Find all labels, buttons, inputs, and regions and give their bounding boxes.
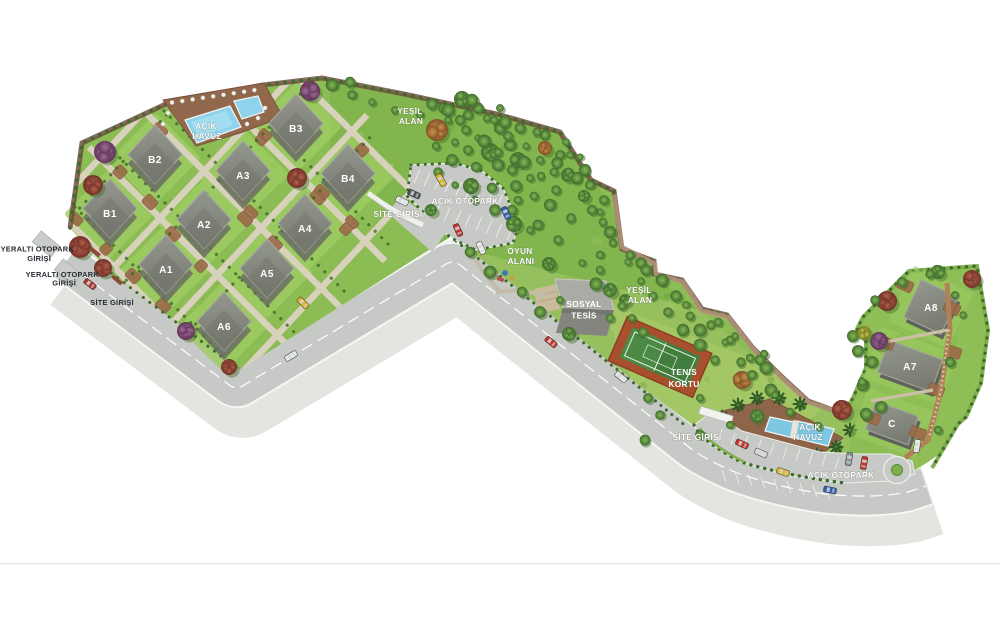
svg-text:AÇIK OTOPARK: AÇIK OTOPARK	[432, 196, 499, 206]
svg-text:AÇIK: AÇIK	[799, 422, 820, 432]
svg-text:GİRİŞİ: GİRİŞİ	[27, 254, 51, 263]
svg-text:B3: B3	[289, 124, 303, 135]
svg-text:HAVUZ: HAVUZ	[192, 131, 221, 141]
svg-text:SİTE GİRİŞİ: SİTE GİRİŞİ	[374, 209, 423, 219]
svg-text:KORTU: KORTU	[669, 379, 700, 389]
svg-text:YEŞİL: YEŞİL	[626, 285, 651, 295]
svg-text:B2: B2	[148, 155, 162, 166]
svg-text:B1: B1	[103, 209, 117, 220]
svg-text:TENIS: TENIS	[671, 367, 697, 377]
svg-text:A1: A1	[159, 265, 173, 276]
svg-text:ALANI: ALANI	[508, 256, 535, 266]
svg-text:HAVUZ: HAVUZ	[793, 432, 822, 442]
svg-text:GİRİŞİ: GİRİŞİ	[52, 279, 76, 288]
svg-text:A8: A8	[924, 303, 938, 314]
svg-text:ALAN: ALAN	[399, 116, 423, 126]
svg-text:AÇIK: AÇIK	[195, 121, 216, 131]
svg-text:A7: A7	[903, 362, 917, 373]
svg-text:C: C	[888, 419, 896, 430]
svg-text:OYUN: OYUN	[507, 246, 532, 256]
svg-text:A5: A5	[260, 269, 274, 280]
svg-text:TESİS: TESİS	[571, 311, 597, 321]
svg-text:A3: A3	[236, 171, 250, 182]
svg-text:SİTE GİRİŞİ: SİTE GİRİŞİ	[673, 432, 722, 442]
svg-text:SİTE GİRİŞİ: SİTE GİRİŞİ	[90, 298, 133, 307]
svg-text:SOSYAL: SOSYAL	[566, 299, 601, 309]
svg-text:ALAN: ALAN	[628, 295, 652, 305]
svg-text:A4: A4	[298, 224, 312, 235]
svg-text:B4: B4	[341, 174, 355, 185]
svg-text:A2: A2	[197, 220, 211, 231]
svg-text:A6: A6	[217, 322, 231, 333]
svg-text:YERALTI OTOPARK: YERALTI OTOPARK	[1, 245, 75, 254]
svg-text:YEŞİL: YEŞİL	[397, 106, 422, 116]
svg-text:AÇIK OTOPARK: AÇIK OTOPARK	[808, 470, 875, 480]
